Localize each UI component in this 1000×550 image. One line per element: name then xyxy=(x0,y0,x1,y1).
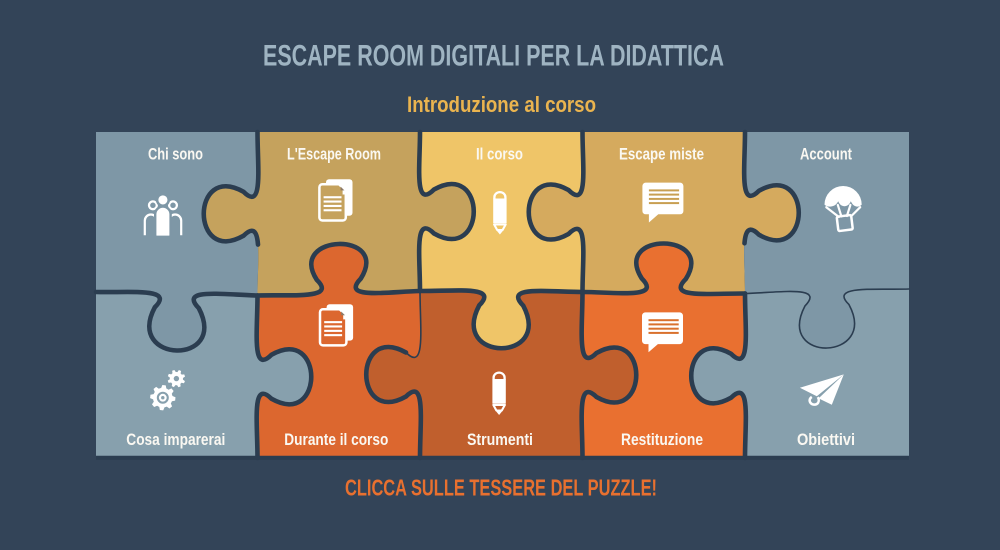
svg-text:Obiettivi: Obiettivi xyxy=(797,431,855,449)
svg-text:L'Escape Room: L'Escape Room xyxy=(287,146,381,164)
svg-text:ESCAPE ROOM DIGITALI PER LA DI: ESCAPE ROOM DIGITALI PER LA DIDATTICA xyxy=(263,40,724,73)
svg-text:Chi sono: Chi sono xyxy=(148,146,203,164)
svg-text:Introduzione al corso: Introduzione al corso xyxy=(407,92,596,117)
svg-text:Durante il corso: Durante il corso xyxy=(284,431,388,449)
svg-text:Il corso: Il corso xyxy=(476,146,523,164)
svg-text:Cosa imparerai: Cosa imparerai xyxy=(126,431,225,449)
svg-text:Escape miste: Escape miste xyxy=(619,146,704,164)
svg-text:Account: Account xyxy=(800,146,852,164)
svg-text:Restituzione: Restituzione xyxy=(621,431,703,449)
svg-text:Strumenti: Strumenti xyxy=(467,431,533,449)
svg-text:CLICCA SULLE TESSERE DEL PUZZL: CLICCA SULLE TESSERE DEL PUZZLE! xyxy=(345,474,657,500)
